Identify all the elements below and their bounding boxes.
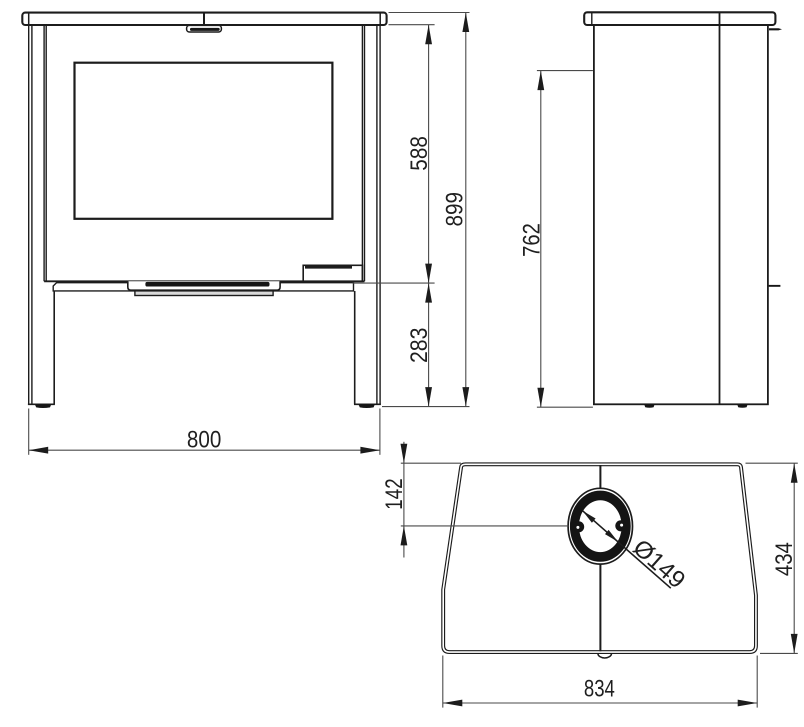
- svg-text:588: 588: [406, 136, 433, 171]
- svg-text:142: 142: [381, 478, 408, 510]
- svg-text:283: 283: [406, 328, 433, 364]
- svg-text:834: 834: [584, 676, 615, 703]
- svg-text:800: 800: [187, 426, 221, 453]
- svg-text:899: 899: [442, 192, 469, 227]
- svg-text:762: 762: [519, 223, 546, 257]
- svg-text:434: 434: [771, 542, 798, 576]
